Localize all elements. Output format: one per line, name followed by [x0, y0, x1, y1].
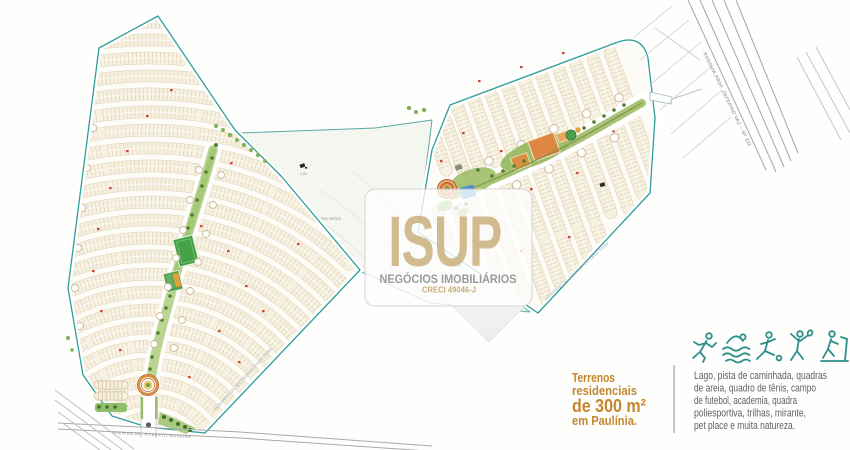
svg-text:CRECI 49046-J: CRECI 49046-J [422, 286, 476, 295]
svg-text:C B L: C B L [300, 172, 308, 176]
svg-text:RODOVIA PROF. ZEFERINO VAZ – S: RODOVIA PROF. ZEFERINO VAZ – SP 332 [702, 51, 752, 147]
svg-text:pet place e muita natureza.: pet place e muita natureza. [694, 420, 795, 432]
svg-text:ISUP: ISUP [388, 202, 501, 281]
svg-text:de futebol, academia, quadra: de futebol, academia, quadra [694, 395, 797, 407]
svg-text:de areia, quadro de tênis, cam: de areia, quadro de tênis, campo [694, 383, 816, 395]
svg-text:poliesportiva, trilhas, mirant: poliesportiva, trilhas, mirante, [694, 408, 806, 420]
svg-text:em Paulínia.: em Paulínia. [572, 413, 637, 428]
svg-text:NEGÓCIOS IMOBILIÁRIOS: NEGÓCIOS IMOBILIÁRIOS [380, 271, 517, 286]
svg-text:Lago, pista de caminhada, quad: Lago, pista de caminhada, quadras [694, 370, 827, 382]
